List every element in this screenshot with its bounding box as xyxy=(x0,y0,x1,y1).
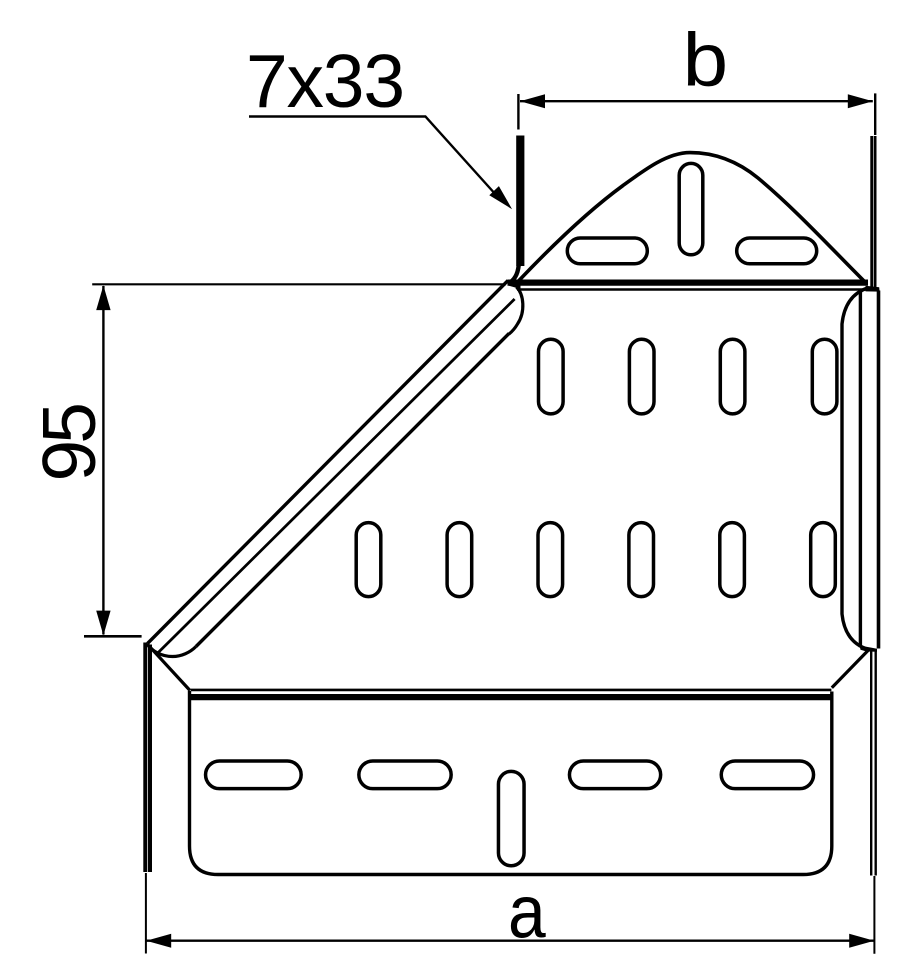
svg-text:95: 95 xyxy=(27,405,111,482)
svg-text:7x33: 7x33 xyxy=(246,39,404,123)
svg-text:b: b xyxy=(683,18,729,102)
